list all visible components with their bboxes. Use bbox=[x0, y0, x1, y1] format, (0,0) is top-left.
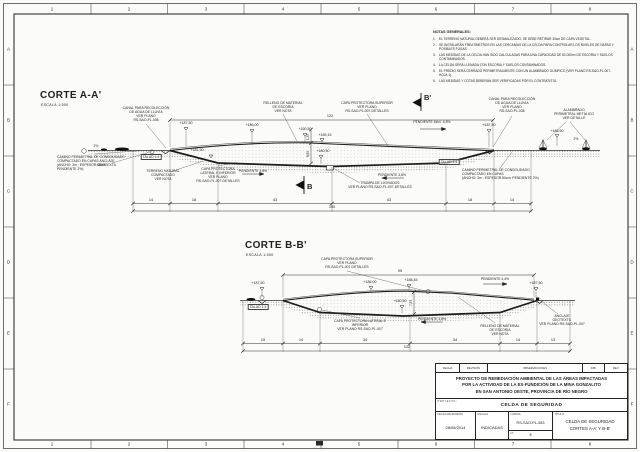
label-capa-superior: CAPA PROTECTORA SUPERIOR VER PLANO RS-SA… bbox=[321, 257, 373, 269]
note-item: 3.LAS MEDIDAS DE LA CELDA HAN SIDO CALCU… bbox=[433, 53, 619, 62]
frame-col-label: 3 bbox=[205, 7, 208, 12]
section-aa-title: CORTE A-A' bbox=[40, 90, 102, 101]
note-item: 2.SE INSTALARÁN FREATÍMETROS EN LAS CERC… bbox=[433, 43, 619, 52]
note-text: EL TERRENO NATURAL DEBERÁ SER DESMALEZAD… bbox=[439, 37, 619, 41]
frame-row-label: B bbox=[7, 118, 10, 123]
section-bb-scale: ESCALA 1:500 bbox=[246, 253, 274, 257]
label-relleno: RELLENO DE MATERIAL DE ESCORIA VER NOTA bbox=[263, 101, 302, 113]
elevation-label: +190,50 bbox=[298, 127, 311, 131]
frame-col-label: 8 bbox=[589, 7, 592, 12]
dim-bottom: 14 bbox=[299, 338, 303, 342]
note-text: LAS MEDIDAS Y COTAS DEBERÁN SER VERIFICA… bbox=[439, 79, 619, 83]
sheet-code-cell: LÁMINA RS-SAO-PL-083 Nº 8 bbox=[509, 412, 553, 439]
label-pendiente-left: PENDIENTE 3,8% bbox=[418, 317, 446, 321]
frame-col-label: 6 bbox=[435, 442, 438, 447]
rev-col-dib: DIB. bbox=[583, 364, 605, 372]
revision-row: FECHA REVISIÓN OBSERVACIONES DIB. REV. bbox=[436, 364, 627, 373]
sheet-number-row: Nº 8 bbox=[509, 430, 552, 439]
frame-col-label: 7 bbox=[512, 7, 515, 12]
dim-vertical: 1,35 bbox=[306, 134, 310, 140]
frame-row-label: C bbox=[630, 189, 633, 194]
frame-row-label: B bbox=[630, 118, 633, 123]
drawing-sheet: 1 2 3 4 5 6 7 8 1 2 3 4 5 6 7 8 A B C D … bbox=[0, 0, 640, 452]
project-title: PROYECTO DE REMEDIACIÓN AMBIENTAL DE LAS… bbox=[436, 373, 627, 399]
label-pendiente-top: PENDIENTE 4,4% bbox=[481, 277, 509, 281]
dim-bottom: 14 bbox=[516, 338, 520, 342]
scale-value: INDICADAS bbox=[481, 425, 503, 430]
note-text: LA CELDA SERÁ LLENADA CON ESCORIA Y SUEL… bbox=[439, 63, 619, 67]
dim-total: 122 bbox=[404, 345, 410, 349]
label-capa-superior: CAPA PROTECTORA SUPERIOR VER PLANO RS-SA… bbox=[341, 101, 393, 113]
label-relleno: RELLENO DE MATERIAL DE ESCORIA VER NOTA bbox=[480, 324, 519, 336]
elevation-label: +187,50 bbox=[251, 281, 264, 285]
dim-bottom: 18 bbox=[468, 198, 472, 202]
frame-col-label: 2 bbox=[128, 442, 131, 447]
section-aa-scale: ESCALA 1:500 bbox=[41, 103, 69, 107]
label-talud-left: TALUD 1:4 bbox=[248, 305, 269, 309]
frame-col-label: 4 bbox=[282, 442, 285, 447]
label-slope-right: 2% bbox=[574, 137, 579, 141]
label-talud-left: TALUD 1:4 bbox=[141, 155, 162, 159]
sheet-title-label: TÍTULO: bbox=[555, 413, 565, 416]
frame-col-label: 5 bbox=[358, 442, 361, 447]
label-pendiente-right: PENDIENTE 3,8% bbox=[378, 173, 406, 177]
note-item: 4.LA CELDA SERÁ LLENADA CON ESCORIA Y SU… bbox=[433, 63, 619, 67]
frame-row-label: E bbox=[7, 331, 10, 336]
frame-row-label: D bbox=[630, 260, 633, 265]
sheet-title-cell: TÍTULO: CELDA DE SEGURIDAD CORTES A-A' Y… bbox=[553, 412, 627, 439]
label-talud-right: TALUD 1:4 bbox=[439, 160, 460, 164]
elevation-label: +188,45 bbox=[404, 278, 417, 282]
scale-label: ESCALA bbox=[478, 413, 489, 416]
frame-row-label: A bbox=[630, 47, 633, 52]
frame-col-label: 8 bbox=[589, 442, 592, 447]
canal-water bbox=[247, 298, 256, 301]
dim-bottom: 14 bbox=[510, 198, 514, 202]
alambrado-fence bbox=[539, 140, 590, 151]
frame-col-label: 7 bbox=[512, 442, 515, 447]
section-bb-title: CORTE B-B' bbox=[245, 240, 307, 251]
label-camino-right: CAMINO PERIMETRAL DE CONSOLIDADO COMPACT… bbox=[462, 168, 539, 180]
label-capa-lateral: CAPA PROTECTORA LATERAL E INFERIOR VER P… bbox=[334, 319, 386, 331]
elevation-label: +180,50 bbox=[316, 149, 329, 153]
dim-top: 122 bbox=[327, 114, 333, 118]
sheet-number-label: Nº bbox=[511, 432, 514, 435]
frame-row-label: D bbox=[7, 260, 10, 265]
frame-row-label: F bbox=[631, 402, 634, 407]
sheet-title: CELDA DE SEGURIDAD CORTES A-A' Y B-B' bbox=[565, 419, 614, 432]
label-anclaje: ANCLAJE GEOTEXTIL VER PLANO RS-SAO-PL-00… bbox=[539, 314, 584, 326]
dim-bottom: 34 bbox=[453, 338, 457, 342]
sheet-code-value: RS-SAO-PL-083 bbox=[516, 421, 544, 425]
elevation-label: +189,15 bbox=[318, 133, 331, 137]
dim-bottom: 18 bbox=[192, 198, 196, 202]
date-label: FECHA DE EMISIÓN bbox=[438, 413, 464, 416]
project-label: PROYECTO: bbox=[438, 400, 457, 403]
elevation-label: +187,50 bbox=[179, 121, 192, 125]
survey-marker bbox=[82, 149, 87, 154]
rev-col-observaciones: OBSERVACIONES bbox=[488, 364, 583, 372]
label-terreno-natural: TERRENO NATURAL COMPACTADO VER NOTA bbox=[146, 169, 179, 181]
frame-col-label: 4 bbox=[282, 7, 285, 12]
dim-bottom: 43 bbox=[387, 198, 391, 202]
project-row: PROYECTO: CELDA DE SEGURIDAD bbox=[436, 399, 627, 412]
label-pendiente-max: PENDIENTE MAX. 6,5% bbox=[413, 120, 450, 124]
label-anclaje: ANCLAJE GEOTEXTIL bbox=[97, 159, 116, 167]
dim-top: 95 bbox=[398, 269, 402, 273]
dim-vertical: 8,65 bbox=[306, 151, 310, 157]
dim-bottom: 43 bbox=[273, 198, 277, 202]
label-slope-left: 2% bbox=[94, 144, 99, 148]
frame-row-label: E bbox=[630, 331, 633, 336]
label-alambrado: ALAMBRADO PERIMETRAL METÁLICO VER DETALL… bbox=[554, 108, 594, 120]
frame-col-label: 2 bbox=[128, 7, 131, 12]
canal-water bbox=[115, 148, 129, 151]
rev-col-rev: REV. bbox=[605, 364, 627, 372]
canal-water bbox=[101, 148, 107, 150]
section-marker-b: B bbox=[307, 182, 312, 191]
general-notes: NOTAS GENERALES: 1.EL TERRENO NATURAL DE… bbox=[433, 30, 619, 85]
label-capa-lateral: CAPA PROTECTORA LATERAL E INFERIOR VER P… bbox=[196, 167, 239, 184]
note-text: SE INSTALARÁN FREATÍMETROS EN LAS CERCAN… bbox=[439, 43, 619, 52]
label-canal-left: CANAL PARA RECOLECCIÓN DE AGUA DE LLUVIA… bbox=[123, 106, 170, 123]
note-item: 6.LAS MEDIDAS Y COTAS DEBERÁN SER VERIFI… bbox=[433, 79, 619, 83]
talud-text: TALUD 1:4 bbox=[248, 304, 269, 310]
sheet-code-label: LÁMINA bbox=[511, 413, 521, 416]
elevation-label: +186,00 bbox=[245, 123, 258, 127]
frame-row-label: F bbox=[7, 402, 10, 407]
section-bb-geometry bbox=[240, 271, 575, 353]
fold-mark bbox=[316, 441, 323, 446]
notes-title: NOTAS GENERALES: bbox=[433, 30, 619, 34]
date-value: 08/08/2014 bbox=[445, 425, 465, 430]
frame-col-label: 6 bbox=[435, 7, 438, 12]
frame-col-label: 3 bbox=[205, 442, 208, 447]
talud-text: TALUD 1:4 bbox=[141, 154, 162, 160]
note-text: EL PREDIO SERÁ CERRADO PERIMETRALMENTE C… bbox=[439, 69, 619, 78]
title-block: FECHA REVISIÓN OBSERVACIONES DIB. REV. P… bbox=[435, 363, 628, 440]
frame-row-label: A bbox=[7, 47, 10, 52]
elevation-label: +187,50 bbox=[529, 281, 542, 285]
section-marker-b-prime: B' bbox=[424, 93, 431, 102]
rev-col-revision: REVISIÓN bbox=[460, 364, 488, 372]
date-cell: FECHA DE EMISIÓN 08/08/2014 bbox=[436, 412, 476, 439]
dim-vertical: 7,95 bbox=[409, 300, 413, 306]
label-canal-right: CANAL PARA RECOLECCIÓN DE AGUA DE LLUVIA… bbox=[489, 97, 536, 114]
elevation-label: +180,50 bbox=[393, 299, 406, 303]
label-pendiente-left: PENDIENTE 3,8% bbox=[239, 169, 267, 173]
rev-col-fecha: FECHA bbox=[436, 364, 460, 372]
anclaje-block bbox=[536, 298, 539, 301]
note-item: 5.EL PREDIO SERÁ CERRADO PERIMETRALMENTE… bbox=[433, 69, 619, 78]
note-item: 1.EL TERRENO NATURAL DEBERÁ SER DESMALEZ… bbox=[433, 37, 619, 41]
title-block-bottom: FECHA DE EMISIÓN 08/08/2014 ESCALA INDIC… bbox=[436, 412, 627, 439]
elevation-label: +181,50 bbox=[190, 148, 203, 152]
trampa-lixiviados bbox=[327, 166, 334, 171]
scale-cell: ESCALA INDICADAS bbox=[476, 412, 509, 439]
dim-bottom: 34 bbox=[363, 338, 367, 342]
elevation-label: +187,50 bbox=[482, 123, 495, 127]
elevation-label: +186,50 bbox=[550, 129, 563, 133]
sheet-number-value: 8 bbox=[529, 433, 531, 437]
dim-total: 150 bbox=[329, 205, 335, 209]
frame-col-label: 1 bbox=[51, 442, 54, 447]
talud-text: TALUD 1:4 bbox=[439, 159, 460, 165]
frame-col-label: 1 bbox=[51, 7, 54, 12]
dim-bottom: 13 bbox=[551, 338, 555, 342]
frame-row-label: C bbox=[7, 189, 10, 194]
elevation-label: +186,00 bbox=[363, 280, 376, 284]
dim-bottom: 15 bbox=[261, 338, 265, 342]
dim-bottom: 14 bbox=[149, 198, 153, 202]
label-trampa: TRAMPA DE LIXIVIADOS VER PLANO RS-SAO-PL… bbox=[348, 181, 412, 189]
note-text: LAS MEDIDAS DE LA CELDA HAN SIDO CALCULA… bbox=[439, 53, 619, 62]
frame-col-label: 5 bbox=[358, 7, 361, 12]
project-name: CELDA DE SEGURIDAD bbox=[501, 403, 563, 408]
sheet-code-top: LÁMINA RS-SAO-PL-083 bbox=[509, 412, 552, 430]
